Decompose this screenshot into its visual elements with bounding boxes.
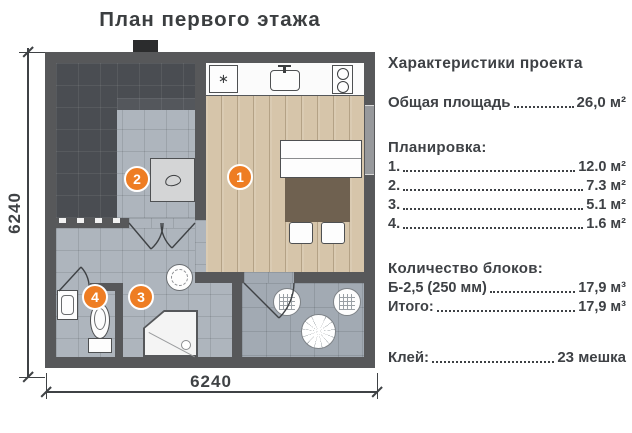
dot-leader: [490, 291, 575, 293]
room-badge-3: 3: [128, 284, 154, 310]
layout-row-value: 1.6 м²: [586, 216, 626, 232]
dimension-ext-bottom-left: [19, 377, 45, 378]
layout-row-3: 3. 5.1 м²: [388, 197, 626, 213]
door-swing-arcs: [45, 52, 375, 368]
specs-panel: Характеристики проекта Общая площадь 26,…: [388, 55, 626, 427]
dot-leader: [403, 170, 575, 172]
dot-leader: [403, 227, 583, 229]
layout-row-value: 5.1 м²: [586, 197, 626, 213]
room-badge-4: 4: [82, 284, 108, 310]
layout-row-value: 12.0 м²: [578, 159, 626, 175]
blocks-row-value: 17,9 м³: [578, 280, 626, 296]
layout-row-label: 2.: [388, 178, 400, 194]
dot-leader: [514, 106, 574, 108]
layout-row-label: 4.: [388, 216, 400, 232]
layout-heading: Планировка:: [388, 139, 487, 156]
blocks-row-value: 17,9 м³: [578, 299, 626, 315]
total-area-label: Общая площадь: [388, 94, 511, 111]
floor-plan: ∗: [45, 52, 375, 368]
dimension-line-left: [27, 48, 29, 378]
dot-leader: [437, 310, 575, 312]
page-title: План первого этажа: [45, 8, 375, 32]
layout-row-4: 4. 1.6 м²: [388, 216, 626, 232]
layout-row-1: 1. 12.0 м²: [388, 159, 626, 175]
blocks-heading: Количество блоков:: [388, 260, 543, 277]
glue-value: 23 мешка: [557, 349, 626, 366]
dimension-ext-bottom-2: [377, 373, 378, 399]
dimension-label-bottom: 6240: [161, 372, 261, 392]
total-area-row: Общая площадь 26,0 м²: [388, 94, 626, 111]
blocks-row-label: Б-2,5 (250 мм): [388, 280, 487, 296]
layout-row-label: 1.: [388, 159, 400, 175]
layout-row-2: 2. 7.3 м²: [388, 178, 626, 194]
blocks-row-label: Итого:: [388, 299, 434, 315]
blocks-row-1: Б-2,5 (250 мм) 17,9 м³: [388, 280, 626, 296]
dot-leader: [403, 189, 583, 191]
layout-row-value: 7.3 м²: [586, 178, 626, 194]
dot-leader: [403, 208, 583, 210]
total-area-value: 26,0 м²: [577, 94, 626, 111]
room-badge-1: 1: [227, 164, 253, 190]
dimension-ext-bottom-1: [46, 373, 47, 399]
dot-leader: [432, 361, 554, 363]
dimension-ext-top-left: [19, 52, 45, 53]
dimension-label-left: 6240: [5, 173, 25, 253]
glue-label: Клей:: [388, 349, 429, 366]
specs-heading: Характеристики проекта: [388, 55, 583, 73]
blocks-row-2: Итого: 17,9 м³: [388, 299, 626, 315]
room-badge-2: 2: [124, 166, 150, 192]
layout-row-label: 3.: [388, 197, 400, 213]
glue-row: Клей: 23 мешка: [388, 349, 626, 366]
